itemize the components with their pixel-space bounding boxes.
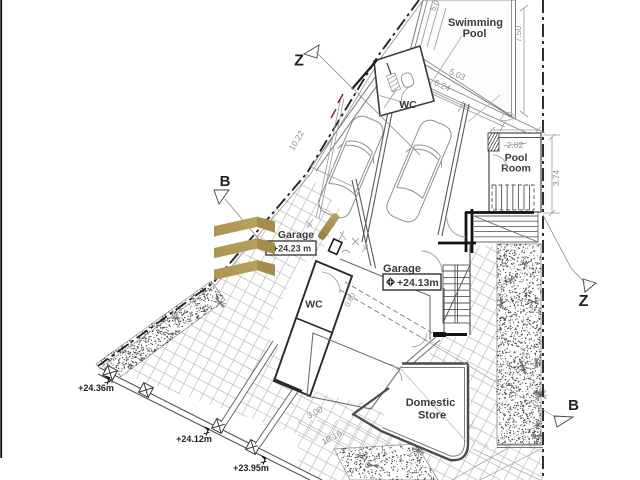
svg-text:WC: WC bbox=[399, 99, 417, 111]
svg-text:+24.36m: +24.36m bbox=[78, 383, 114, 393]
svg-text:Store: Store bbox=[418, 410, 446, 422]
svg-text:Garage: Garage bbox=[278, 229, 314, 241]
svg-text:Garage: Garage bbox=[383, 263, 421, 275]
svg-text:Domestic: Domestic bbox=[406, 397, 456, 409]
svg-text:+24.13m: +24.13m bbox=[397, 277, 439, 289]
svg-text:B: B bbox=[220, 173, 231, 190]
svg-text:WC: WC bbox=[305, 299, 323, 311]
svg-text:+23.95m: +23.95m bbox=[233, 463, 269, 473]
svg-text:3.74: 3.74 bbox=[551, 169, 561, 186]
svg-text:+24.12m: +24.12m bbox=[176, 434, 212, 444]
svg-text:Pool: Pool bbox=[463, 28, 487, 40]
svg-text:B: B bbox=[568, 397, 579, 414]
svg-text:Room: Room bbox=[501, 163, 531, 175]
svg-text:+24.23 m: +24.23 m bbox=[273, 244, 311, 254]
svg-text:7.50: 7.50 bbox=[513, 25, 523, 42]
svg-text:Z: Z bbox=[294, 53, 304, 70]
svg-text:Z: Z bbox=[579, 293, 589, 310]
